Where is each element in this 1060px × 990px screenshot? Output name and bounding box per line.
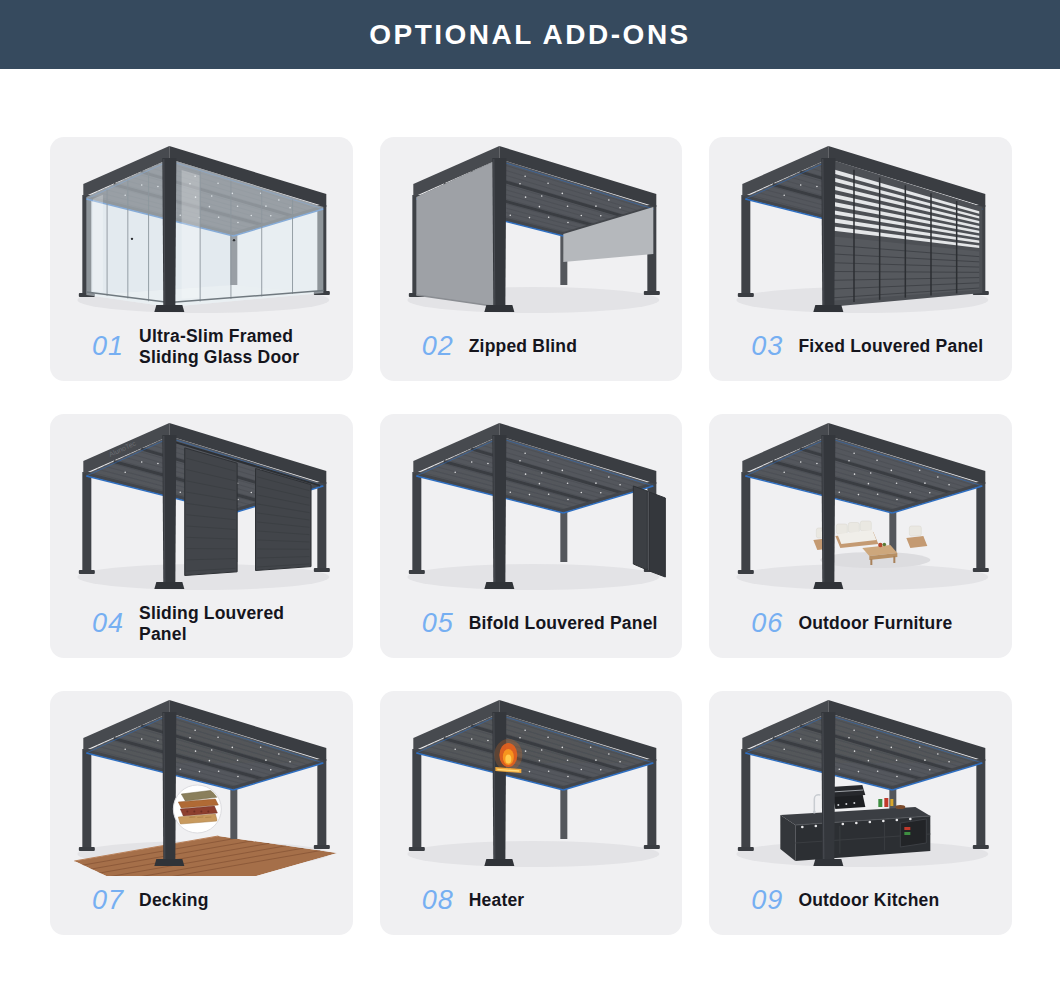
addon-number: 03 [751, 333, 783, 360]
addon-card-outdoor-kitchen: 09 Outdoor Kitchen [709, 691, 1012, 935]
addon-caption: 07 Decking [50, 876, 353, 935]
pergola-glass-door-illustration [50, 137, 353, 322]
pergola-zipped-blind-icon [380, 137, 683, 322]
addon-caption: 01 Ultra-Slim Framed Sliding Glass Door [50, 322, 353, 381]
pergola-bifold-louvered-illustration [380, 414, 683, 599]
addon-number: 02 [422, 333, 454, 360]
pergola-heater-illustration [380, 691, 683, 876]
addon-caption: 08 Heater [380, 876, 683, 935]
pergola-decking-illustration [50, 691, 353, 876]
addon-number: 05 [422, 610, 454, 637]
page-title: OPTIONAL ADD-ONS [369, 19, 691, 51]
addon-caption: 02 Zipped Blind [380, 322, 683, 381]
pergola-outdoor-furniture-illustration [709, 414, 1012, 599]
addon-number: 04 [92, 610, 124, 637]
addon-number: 09 [751, 887, 783, 914]
addon-caption: 03 Fixed Louvered Panel [709, 322, 1012, 381]
addon-label: Outdoor Furniture [798, 613, 952, 634]
addon-card-bifold-louvered: 05 Bifold Louvered Panel [380, 414, 683, 658]
pergola-heater-icon [380, 691, 683, 876]
addon-label: Outdoor Kitchen [798, 890, 939, 911]
pergola-fixed-louvered-icon [709, 137, 1012, 322]
addon-label: Zipped Blind [469, 336, 577, 357]
addons-grid: 01 Ultra-Slim Framed Sliding Glass Door … [50, 137, 1012, 935]
pergola-glass-door-icon [50, 137, 353, 322]
addon-card-glass-door: 01 Ultra-Slim Framed Sliding Glass Door [50, 137, 353, 381]
addon-label: Fixed Louvered Panel [798, 336, 983, 357]
addon-number: 08 [422, 887, 454, 914]
addon-caption: 04 Sliding Louvered Panel [50, 599, 353, 658]
pergola-sliding-louvered-illustration: AlunoTec [50, 414, 353, 599]
pergola-bifold-louvered-icon [380, 414, 683, 599]
addon-card-zipped-blind: 02 Zipped Blind [380, 137, 683, 381]
addon-card-sliding-louvered: AlunoTec 04 Sliding Louvered Panel [50, 414, 353, 658]
addon-label: Sliding Louvered Panel [139, 603, 334, 644]
optional-addons-banner: OPTIONAL ADD-ONS [0, 0, 1060, 69]
pergola-fixed-louvered-illustration [709, 137, 1012, 322]
addon-number: 06 [751, 610, 783, 637]
addon-caption: 09 Outdoor Kitchen [709, 876, 1012, 935]
pergola-outdoor-kitchen-illustration [709, 691, 1012, 876]
addon-card-fixed-louvered: 03 Fixed Louvered Panel [709, 137, 1012, 381]
addon-number: 07 [92, 887, 124, 914]
addon-caption: 05 Bifold Louvered Panel [380, 599, 683, 658]
addon-label: Decking [139, 890, 208, 911]
pergola-decking-icon [50, 691, 353, 876]
addon-card-heater: 08 Heater [380, 691, 683, 935]
addon-label: Bifold Louvered Panel [469, 613, 658, 634]
addon-label: Ultra-Slim Framed Sliding Glass Door [139, 326, 334, 367]
pergola-zipped-blind-illustration [380, 137, 683, 322]
addon-card-decking: 07 Decking [50, 691, 353, 935]
pergola-sliding-louvered-icon: AlunoTec [50, 414, 353, 599]
addon-caption: 06 Outdoor Furniture [709, 599, 1012, 658]
pergola-outdoor-kitchen-icon [709, 691, 1012, 876]
addon-card-outdoor-furniture: 06 Outdoor Furniture [709, 414, 1012, 658]
addon-label: Heater [469, 890, 525, 911]
addon-number: 01 [92, 333, 124, 360]
pergola-outdoor-furniture-icon [709, 414, 1012, 599]
